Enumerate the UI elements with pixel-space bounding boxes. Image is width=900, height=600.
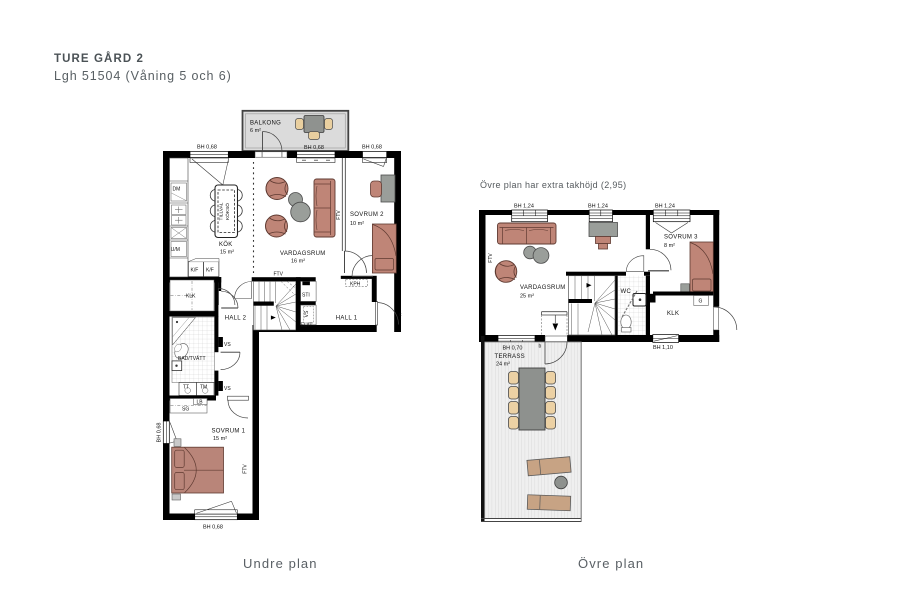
svg-text:KÖK: KÖK	[219, 241, 233, 248]
svg-text:HALL 1: HALL 1	[336, 316, 358, 322]
svg-text:G: G	[699, 299, 703, 305]
svg-text:FTV: FTV	[488, 253, 494, 263]
svg-text:K/F: K/F	[191, 268, 199, 274]
svg-text:BH 0,70: BH 0,70	[503, 346, 523, 352]
svg-text:8 m²: 8 m²	[664, 243, 675, 249]
svg-text:15 m²: 15 m²	[213, 436, 227, 442]
svg-text:TERRASS: TERRASS	[495, 354, 525, 360]
svg-text:SOVRUM 2: SOVRUM 2	[350, 212, 384, 218]
svg-text:BH 1,24: BH 1,24	[655, 204, 675, 210]
svg-text:BH 1,24: BH 1,24	[588, 204, 608, 210]
svg-text:FTV: FTV	[243, 464, 249, 474]
svg-text:SOVRUM 1: SOVRUM 1	[212, 429, 246, 435]
svg-text:BH 0,68: BH 0,68	[203, 525, 223, 531]
svg-text:TURE GÅRD 2: TURE GÅRD 2	[54, 52, 144, 65]
svg-text:10 m²: 10 m²	[350, 221, 364, 227]
svg-text:Övre plan har extra takhöjd (2: Övre plan har extra takhöjd (2,95)	[480, 180, 626, 190]
svg-text:VARDAGSRUM: VARDAGSRUM	[520, 285, 566, 291]
svg-text:FTV: FTV	[336, 210, 342, 220]
svg-text:KLK: KLK	[186, 294, 196, 300]
svg-text:WC: WC	[621, 289, 632, 295]
svg-text:16 m²: 16 m²	[291, 259, 305, 265]
svg-text:KLK: KLK	[667, 311, 679, 317]
svg-text:BALKONG: BALKONG	[250, 121, 281, 127]
svg-text:FTV: FTV	[274, 272, 284, 278]
svg-text:Lgh 51504 (Våning 5 och 6): Lgh 51504 (Våning 5 och 6)	[54, 69, 232, 83]
svg-text:K/F: K/F	[206, 268, 214, 274]
svg-text:U/M: U/M	[171, 247, 180, 253]
svg-text:SG: SG	[182, 407, 189, 413]
svg-text:24 m²: 24 m²	[496, 362, 510, 368]
svg-text:TT: TT	[183, 385, 189, 391]
svg-text:KÖKSÖ: KÖKSÖ	[224, 203, 231, 220]
svg-text:BH 0,68: BH 0,68	[157, 423, 163, 443]
svg-text:TILLVAL: TILLVAL	[219, 202, 225, 220]
svg-text:b: b	[539, 344, 542, 350]
svg-text:BH 1,10: BH 1,10	[653, 345, 673, 351]
svg-text:BAD/TVÄTT: BAD/TVÄTT	[178, 355, 206, 362]
svg-text:BH 0,68: BH 0,68	[362, 145, 382, 151]
svg-text:25 m²: 25 m²	[520, 294, 534, 300]
svg-text:BH 0,68: BH 0,68	[304, 145, 324, 151]
svg-text:VARDAGSRUM: VARDAGSRUM	[280, 251, 326, 257]
svg-text:Undre plan: Undre plan	[243, 556, 318, 571]
svg-text:Övre plan: Övre plan	[578, 556, 644, 571]
svg-text:VS: VS	[224, 386, 231, 392]
svg-text:DM: DM	[173, 187, 181, 193]
svg-text:6 m²: 6 m²	[250, 128, 261, 134]
svg-text:BH 1,24: BH 1,24	[514, 204, 534, 210]
svg-text:LB: LB	[197, 400, 204, 406]
svg-text:EL/IT: EL/IT	[301, 323, 313, 329]
svg-text:KPH: KPH	[350, 282, 361, 288]
svg-text:VS: VS	[304, 310, 310, 317]
svg-text:SOVRUM 3: SOVRUM 3	[664, 235, 698, 241]
svg-text:VS: VS	[224, 342, 231, 348]
svg-text:TM: TM	[200, 385, 207, 391]
svg-text:HALL 2: HALL 2	[225, 316, 247, 322]
svg-text:STI: STI	[302, 293, 310, 299]
svg-text:BH 0,68: BH 0,68	[197, 145, 217, 151]
svg-text:15 m²: 15 m²	[220, 250, 234, 256]
